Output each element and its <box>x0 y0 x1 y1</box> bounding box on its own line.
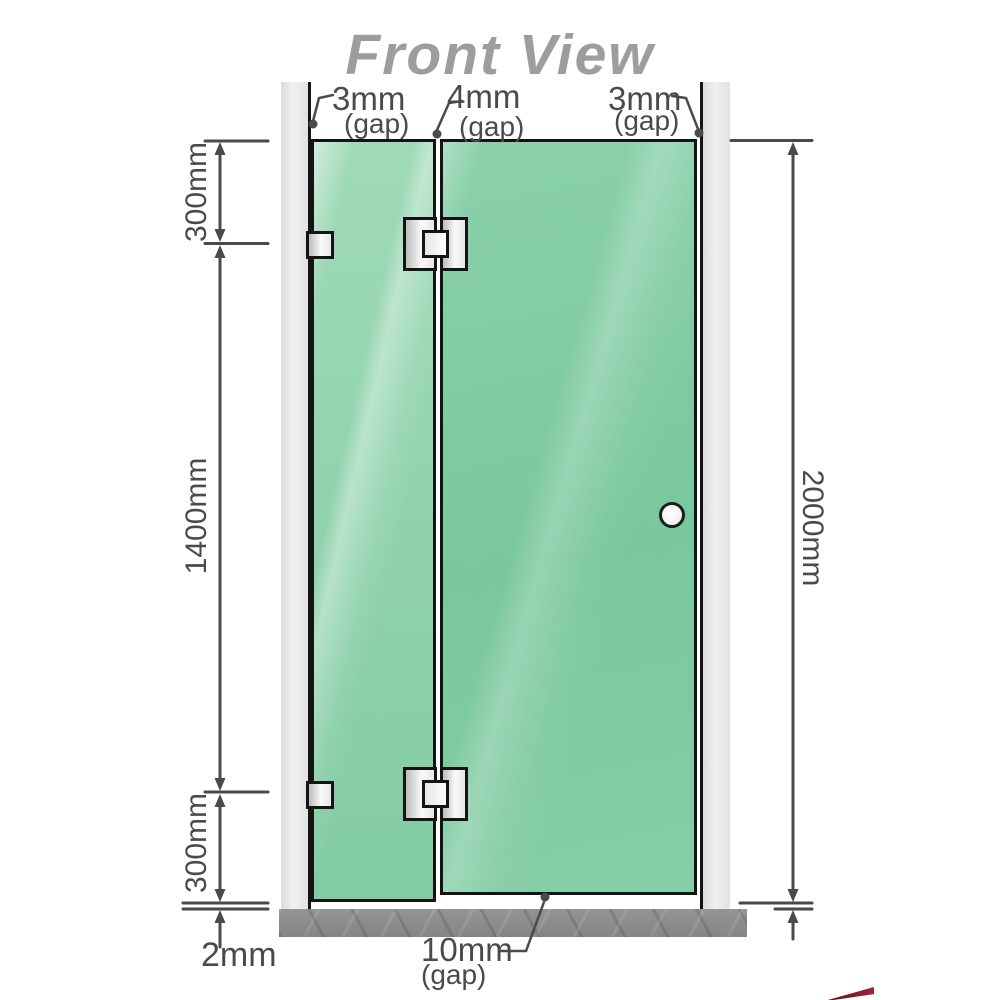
dimension-arrowheads <box>215 142 799 923</box>
dimension-label-300mm-bottom: 300mm <box>180 793 214 893</box>
gap-label-top-right-unit: (gap) <box>614 107 679 135</box>
dimension-label-300mm-top: 300mm <box>180 142 214 242</box>
gap-label-top-left-unit: (gap) <box>344 110 409 138</box>
front-view-diagram: Front View <box>0 0 1000 1000</box>
dimension-label-2mm: 2mm <box>201 936 277 975</box>
dimension-lines-layer <box>0 0 1000 1000</box>
leader-dots <box>309 120 704 902</box>
dimension-label-2000mm: 2000mm <box>795 470 829 587</box>
gap-label-top-middle-unit: (gap) <box>459 113 524 141</box>
dimension-label-1400mm: 1400mm <box>180 458 214 575</box>
gap-label-bottom-unit: (gap) <box>421 961 486 989</box>
leader-lines <box>313 95 698 951</box>
gap-label-top-middle-value: 4mm <box>447 80 520 113</box>
dimension-ticks <box>183 141 812 910</box>
dimension-stems <box>220 154 793 947</box>
